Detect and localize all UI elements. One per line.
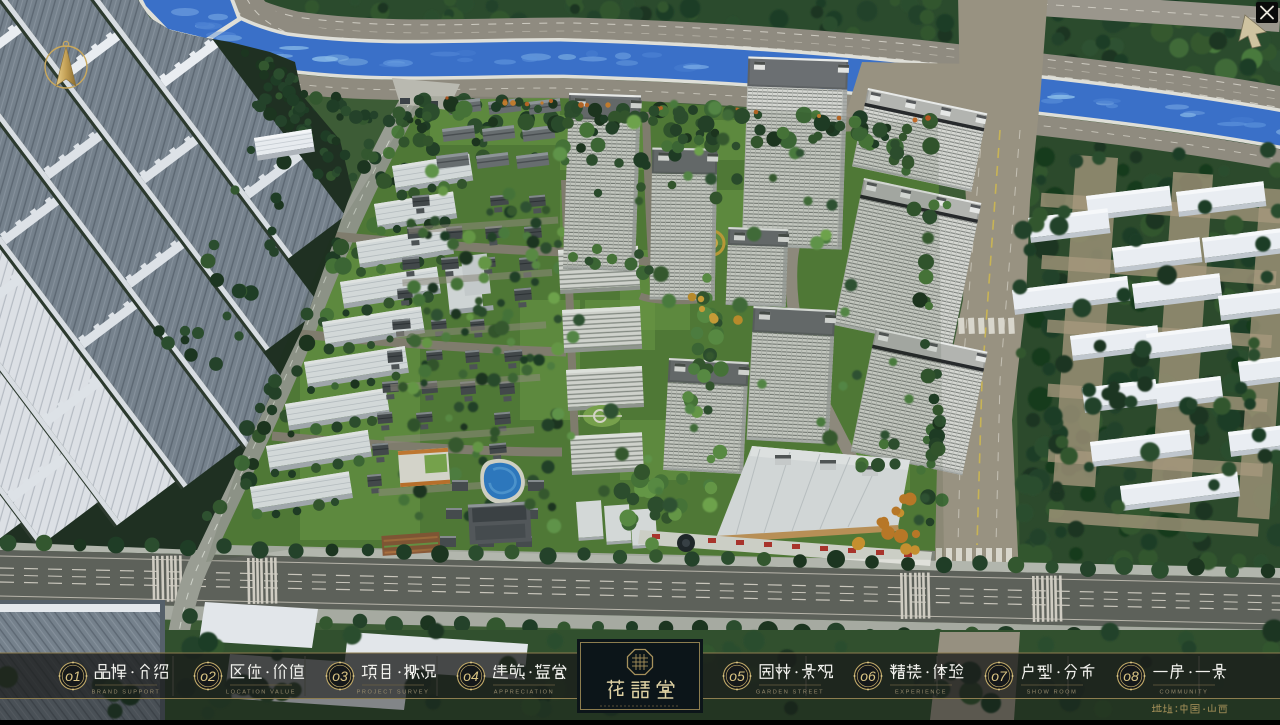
svg-text:COMMUNITY: COMMUNITY: [1160, 690, 1209, 696]
svg-text:o4: o4: [463, 668, 479, 684]
svg-text:APPRECIATION: APPRECIATION: [494, 690, 554, 696]
svg-text:BRAND SUPPORT: BRAND SUPPORT: [92, 690, 161, 696]
svg-text:o7: o7: [991, 668, 1008, 684]
svg-text:o2: o2: [200, 668, 216, 684]
svg-text:o8: o8: [1123, 668, 1139, 684]
svg-text:LOCATION VALUE: LOCATION VALUE: [226, 690, 296, 696]
svg-text:o6: o6: [860, 668, 876, 684]
svg-text:o3: o3: [332, 668, 348, 684]
svg-text:o5: o5: [729, 668, 745, 684]
svg-text:SHOW ROOM: SHOW ROOM: [1027, 690, 1078, 696]
svg-text:EXPERIENCE: EXPERIENCE: [895, 690, 947, 696]
svg-text:o1: o1: [65, 668, 81, 684]
svg-text:GARDEN STREET: GARDEN STREET: [756, 690, 824, 696]
svg-text:PROJECT SURVEY: PROJECT SURVEY: [357, 690, 430, 696]
